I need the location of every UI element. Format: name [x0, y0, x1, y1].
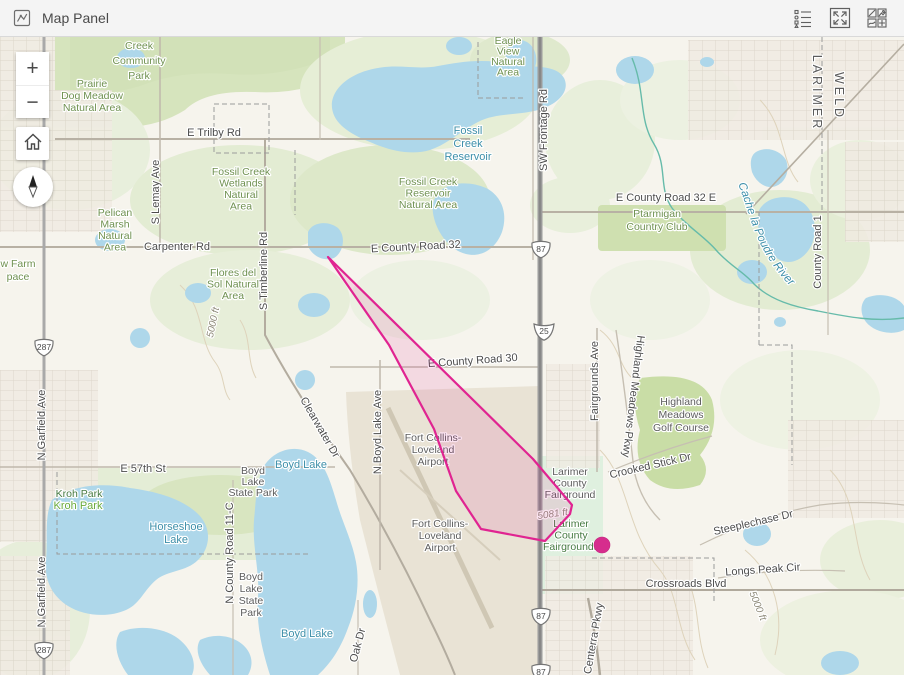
map-label: Crossroads Blvd [646, 578, 727, 590]
map-label: Fossil CreekReservoirNatural Area [399, 176, 458, 211]
map-label: S Lemay Ave [150, 160, 162, 225]
map-label: E 57th St [120, 463, 165, 475]
map-label: PtarmiganCountry Club [626, 208, 687, 233]
map-label: BoydLakeStatePark [239, 571, 264, 619]
map-label: N County Road 11-C [224, 502, 236, 603]
map-panel-app: Map Panel [0, 0, 904, 675]
map-label: Kroh Park [56, 488, 103, 500]
map-container: 28728787258787 Cache la Poudre River Cre… [0, 37, 904, 675]
svg-text:287: 287 [37, 645, 51, 655]
map-label: Kroh Park [54, 500, 103, 512]
map-label: Boyd Lake [281, 628, 333, 640]
map-label: N Garfield Ave [36, 390, 48, 461]
panel-header: Map Panel [0, 0, 904, 37]
map-label: E Trilby Rd [187, 127, 241, 139]
zoom-out-button[interactable]: − [16, 85, 49, 118]
svg-text:87: 87 [536, 611, 546, 621]
map-label: Boyd Lake [275, 459, 327, 471]
map-label: HighlandMeadowsGolf Course [653, 396, 709, 434]
legend-button[interactable] [792, 7, 814, 29]
svg-text:87: 87 [536, 244, 546, 254]
compass-button[interactable] [13, 167, 53, 207]
map-panel-icon [13, 9, 31, 27]
map-label: N Boyd Lake Ave [372, 390, 384, 474]
map-label: Fairgrounds Ave [589, 341, 601, 421]
panel-title: Map Panel [42, 10, 109, 26]
home-icon [23, 132, 43, 155]
svg-text:87: 87 [536, 667, 546, 675]
legend-icon [793, 8, 813, 28]
expand-button[interactable] [829, 7, 851, 29]
map-canvas[interactable]: 28728787258787 Cache la Poudre River Cre… [0, 37, 904, 675]
highway-shield: 87 [532, 664, 550, 675]
map-label: Carpenter Rd [144, 241, 210, 253]
map-label: LARIMER [810, 55, 824, 132]
basemap-gallery-icon [867, 8, 887, 28]
map-label: N Garfield Ave [36, 557, 48, 628]
map-label: S Timberline Rd [258, 232, 270, 310]
map-label: SW Frontage Rd [538, 89, 550, 171]
svg-text:287: 287 [37, 342, 51, 352]
map-label: WELD [832, 72, 846, 120]
svg-text:25: 25 [539, 326, 549, 336]
home-button[interactable] [16, 127, 49, 160]
expand-icon [829, 7, 851, 29]
map-label: County Road 1 [812, 215, 824, 288]
basemap-button[interactable] [866, 7, 888, 29]
zoom-in-button[interactable]: + [16, 52, 49, 85]
zoom-controls: + − [16, 52, 49, 118]
overlay-marker[interactable] [594, 537, 610, 553]
map-label: E County Road 32 E [616, 192, 716, 204]
compass-needle-icon [20, 173, 46, 202]
